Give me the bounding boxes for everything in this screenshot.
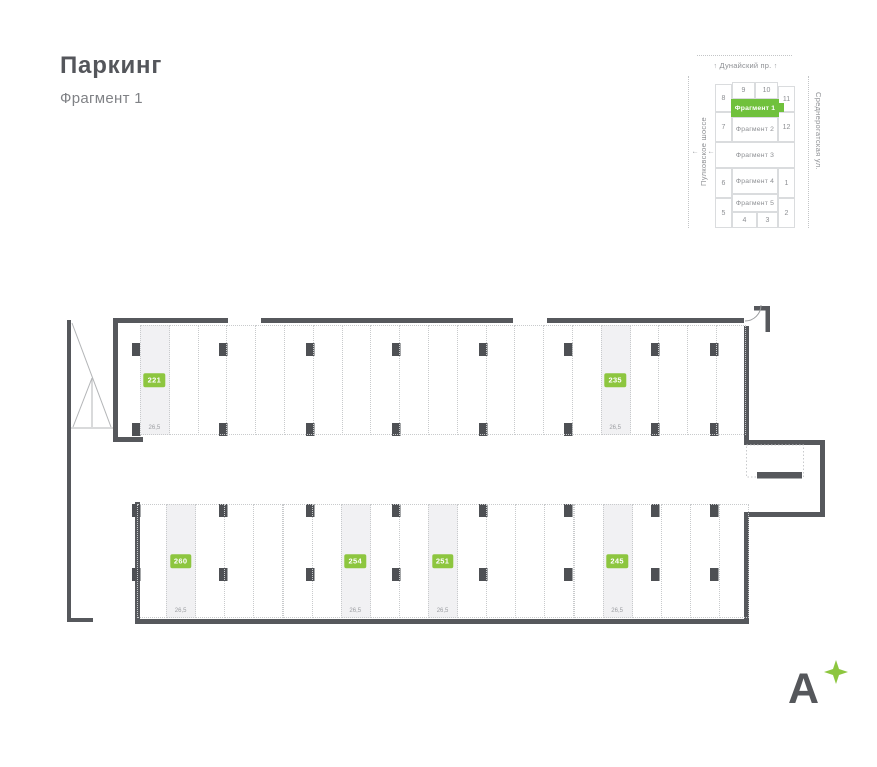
space-number-badge: 251 (432, 554, 453, 568)
parking-space (370, 504, 400, 618)
parking-space (169, 325, 199, 435)
parking-space (661, 504, 691, 618)
space-number-badge: 235 (604, 373, 625, 387)
elevator-wall (757, 472, 802, 479)
parking-space (283, 504, 313, 618)
parking-space (486, 325, 516, 435)
parking-space (370, 325, 400, 435)
parking-space (284, 325, 314, 435)
brand-logo: А (786, 664, 856, 734)
parking-space (195, 504, 225, 618)
parking-space (658, 325, 688, 435)
parking-space (543, 325, 573, 435)
space-area-label: 26,5 (437, 608, 449, 614)
space-area-label: 26,5 (609, 425, 621, 431)
parking-space (515, 504, 545, 618)
parking-space (690, 504, 720, 618)
parking-space (224, 504, 254, 618)
parking-space (255, 325, 285, 435)
parking-space (313, 325, 343, 435)
space-number-badge: 245 (606, 554, 627, 568)
sparkle-icon (824, 660, 848, 684)
parking-space (253, 504, 283, 618)
parking-space (632, 504, 662, 618)
space-area-label: 26,5 (149, 425, 161, 431)
space-area-label: 26,5 (175, 608, 187, 614)
ramp (71, 323, 113, 428)
parking-space (716, 325, 746, 435)
parking-space (687, 325, 717, 435)
parking-space (719, 504, 749, 618)
parking-space (574, 504, 604, 618)
parking-space (457, 504, 487, 618)
logo-letter: А (788, 668, 819, 711)
parking-space (486, 504, 516, 618)
parking-space (342, 325, 372, 435)
parking-space (630, 325, 660, 435)
minimap-fragment-1-marker (778, 103, 784, 112)
space-number-badge: 221 (144, 373, 165, 387)
parking-space (312, 504, 342, 618)
parking-space (399, 504, 429, 618)
space-number-badge: 254 (345, 554, 366, 568)
parking-space (198, 325, 228, 435)
parking-space (137, 504, 167, 618)
parking-space (457, 325, 487, 435)
parking-space (226, 325, 256, 435)
minimap-fragment-1[interactable]: Фрагмент 1 (731, 99, 779, 117)
parking-space (544, 504, 574, 618)
parking-space (514, 325, 544, 435)
space-area-label: 26,5 (611, 608, 623, 614)
parking-space (399, 325, 429, 435)
parking-space (428, 325, 458, 435)
space-area-label: 26,5 (349, 608, 361, 614)
space-number-badge: 260 (170, 554, 191, 568)
parking-space (572, 325, 602, 435)
